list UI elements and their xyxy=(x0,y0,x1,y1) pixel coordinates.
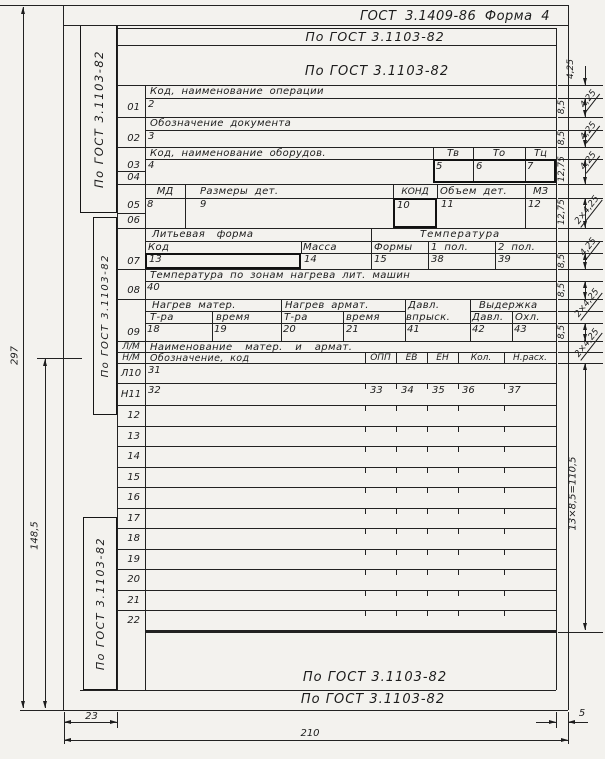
dim-half-height: 148,5 xyxy=(30,496,41,576)
column-tick xyxy=(365,508,366,514)
grid-line xyxy=(405,299,406,341)
cell-value-42: 42 xyxy=(472,324,485,335)
row-number-06: 06 xyxy=(117,213,144,228)
cell-value-9: 9 xyxy=(200,199,206,210)
col-header-1pol: 1 пол. xyxy=(431,242,468,253)
column-tick xyxy=(504,467,505,473)
cell-value-3: 3 xyxy=(148,131,154,142)
group-header-pressure: Давл. xyxy=(408,300,439,311)
dimension-arrow xyxy=(583,292,587,299)
col-header-obem: Объем дет. xyxy=(440,186,507,197)
column-tick xyxy=(365,610,366,616)
grid-line xyxy=(301,241,302,253)
dimension-arrow xyxy=(583,140,587,147)
grid-line xyxy=(371,228,372,269)
group-header-temperature: Температура xyxy=(420,229,500,240)
emphasis-box xyxy=(393,198,437,228)
dimension-arrow xyxy=(64,738,71,742)
grid-line xyxy=(145,311,405,312)
header-document: Обозначение документа xyxy=(150,118,291,129)
grid-line xyxy=(145,130,556,131)
dimension-arrow xyxy=(43,701,47,708)
row-number-21: 21 xyxy=(117,590,144,610)
group-header-mold: Литьевая форма xyxy=(152,229,253,240)
grid-line xyxy=(558,228,603,229)
col-header-vremya-1: время xyxy=(216,312,250,323)
col-header-vremya-2: время xyxy=(346,312,380,323)
grid-line xyxy=(117,528,556,529)
grid-line xyxy=(117,117,556,118)
column-tick xyxy=(396,549,397,555)
grid-line xyxy=(145,85,146,690)
cell-value-36: 36 xyxy=(462,385,475,396)
cell-value-39: 39 xyxy=(498,254,511,265)
cell-value-8: 8 xyxy=(147,199,153,210)
column-tick xyxy=(365,549,366,555)
dimension-arrow xyxy=(583,334,587,341)
grid-line xyxy=(558,352,603,353)
cell-value-14: 14 xyxy=(304,254,317,265)
column-tick xyxy=(427,467,428,473)
row-number-01: 01 xyxy=(117,98,144,117)
gost-strip-side-3-label: По ГОСТ 3.1103-82 xyxy=(94,537,107,670)
dimension-arrow xyxy=(583,363,587,370)
row-number-20: 20 xyxy=(117,569,144,590)
column-tick xyxy=(427,426,428,432)
grid-line xyxy=(558,632,603,633)
grid-line xyxy=(145,323,556,324)
col-header-tra-2: Т-ра xyxy=(284,312,308,323)
col-header-md: МД xyxy=(145,185,185,198)
grid-line xyxy=(63,25,568,26)
gost-strip-side-1-label: По ГОСТ 3.1103-82 xyxy=(92,50,106,188)
grid-line xyxy=(117,171,145,172)
dim-chain-7-d: 2×4,25 xyxy=(572,326,602,361)
grid-line xyxy=(504,352,505,363)
col-header-vprysk: впрыск. xyxy=(406,312,450,323)
dimension-arrow xyxy=(21,701,25,708)
grid-line xyxy=(117,549,556,550)
column-tick xyxy=(365,467,366,473)
grid-line xyxy=(117,28,556,29)
grid-line xyxy=(558,184,603,185)
grid-line xyxy=(185,184,186,228)
header-zone-temperature: Температура по зонам нагрева лит. машин xyxy=(150,270,410,281)
grid-line xyxy=(558,311,603,312)
dimension-arrow xyxy=(583,262,587,269)
column-tick xyxy=(458,610,459,616)
row-number-19: 19 xyxy=(117,549,144,569)
column-tick xyxy=(458,467,459,473)
dimension-arrow xyxy=(583,98,587,105)
column-tick xyxy=(458,405,459,411)
column-tick xyxy=(396,383,397,389)
col-header-tra-1: Т-ра xyxy=(150,312,174,323)
dimension-arrow xyxy=(583,110,587,117)
col-header-ohl: Охл. xyxy=(515,312,540,323)
column-tick xyxy=(504,528,505,534)
cell-value-38: 38 xyxy=(431,254,444,265)
column-tick xyxy=(365,590,366,596)
grid-line xyxy=(558,253,603,254)
grid-line xyxy=(343,311,344,341)
column-tick xyxy=(365,487,366,493)
column-tick xyxy=(396,508,397,514)
row-number-04: 04 xyxy=(117,171,144,183)
col-header-mz: МЗ xyxy=(525,185,556,198)
col-header-massa: Масса xyxy=(303,242,337,253)
dimension-arrow xyxy=(583,281,587,288)
column-tick xyxy=(458,446,459,452)
grid-line xyxy=(470,299,471,341)
dimension-arrow xyxy=(583,177,587,184)
grid-line xyxy=(117,569,556,570)
grid-line xyxy=(117,467,556,468)
grid-line xyxy=(117,426,556,427)
column-tick xyxy=(504,610,505,616)
column-tick xyxy=(504,487,505,493)
grid-line xyxy=(117,352,556,353)
dim-chain-3-v: 12,75 xyxy=(557,149,567,189)
column-tick xyxy=(396,569,397,575)
column-tick xyxy=(427,549,428,555)
group-header-vyderzhka: Выдержка xyxy=(479,300,538,311)
column-tick xyxy=(504,590,505,596)
column-tick xyxy=(396,590,397,596)
cell-value-33: 33 xyxy=(370,385,383,396)
grid-line xyxy=(45,359,46,708)
cell-value-20: 20 xyxy=(283,324,296,335)
col-header-razmery: Размеры дет. xyxy=(200,186,278,197)
cell-value-4: 4 xyxy=(148,160,154,171)
row-number-22: 22 xyxy=(117,610,144,630)
dim-chain-3-d: 4,25 xyxy=(578,149,600,173)
cell-value-19: 19 xyxy=(214,324,227,335)
grid-line xyxy=(558,159,603,160)
cell-value-37: 37 xyxy=(508,385,521,396)
gost-strip-side-2-label: По ГОСТ 3.1103-82 xyxy=(100,254,111,377)
grid-line xyxy=(558,147,603,148)
col-header-tv: Тв xyxy=(433,147,473,159)
dimension-arrow xyxy=(583,159,587,166)
column-tick xyxy=(458,508,459,514)
column-tick xyxy=(504,549,505,555)
col-header-kod: Код xyxy=(148,242,169,253)
page-title: ГОСТ 3.1409-86 Форма 4 xyxy=(340,9,550,24)
grid-line xyxy=(558,341,603,342)
dimension-arrow xyxy=(583,130,587,137)
column-tick xyxy=(396,446,397,452)
gost-strip-side-3: По ГОСТ 3.1103-82 xyxy=(83,517,117,690)
column-tick xyxy=(365,383,366,389)
grid-line xyxy=(512,311,513,341)
column-tick xyxy=(504,383,505,389)
grid-line xyxy=(0,5,568,6)
column-tick xyxy=(365,405,366,411)
row-number-14: 14 xyxy=(117,446,144,467)
col-header-tc: Тц xyxy=(525,147,556,159)
column-tick xyxy=(458,426,459,432)
grid-line xyxy=(117,712,118,728)
grid-line xyxy=(558,281,603,282)
grid-line xyxy=(558,323,603,324)
gost-strip-top-1: По ГОСТ 3.1103-82 xyxy=(250,29,500,44)
grid-line xyxy=(117,269,556,270)
grid-line xyxy=(117,383,556,384)
column-tick xyxy=(396,528,397,534)
col-header-formy: Формы xyxy=(374,242,413,253)
cell-value-32: 32 xyxy=(148,385,161,396)
cell-value-2: 2 xyxy=(148,99,154,110)
cell-value-31: 31 xyxy=(148,365,161,376)
cell-value-15: 15 xyxy=(374,254,387,265)
row-number-n11: Н11 xyxy=(117,383,145,405)
row-number-09: 09 xyxy=(117,323,144,341)
grid-line xyxy=(145,281,556,282)
grid-line xyxy=(433,147,434,159)
row-number-08: 08 xyxy=(117,281,144,299)
dim-chain-5-d: 4,25 xyxy=(578,235,600,259)
grid-line xyxy=(365,352,366,363)
row-number-17: 17 xyxy=(117,508,144,528)
header-operation: Код, наименование операции xyxy=(150,86,324,97)
grid-line xyxy=(117,508,556,509)
column-tick xyxy=(427,405,428,411)
grid-line xyxy=(396,352,397,363)
column-tick xyxy=(427,487,428,493)
grid-line xyxy=(281,299,282,341)
grid-line xyxy=(558,363,603,364)
dim-paper-width: 210 xyxy=(260,728,360,739)
row-number-05: 05 xyxy=(117,198,144,213)
column-tick xyxy=(396,405,397,411)
col-header-davl: Давл. xyxy=(472,312,503,323)
grid-line xyxy=(117,184,556,185)
dim-chain-7-v: 8,5 xyxy=(557,312,567,352)
grid-line xyxy=(558,117,603,118)
col-header-ev: ЕВ xyxy=(396,352,427,363)
group-header-heat-material: Нагрев матер. xyxy=(152,300,236,311)
dimension-arrow xyxy=(583,221,587,228)
col-header-2pol: 2 пол. xyxy=(498,242,535,253)
grid-line xyxy=(556,712,557,728)
grid-line xyxy=(145,630,556,633)
dimension-arrow xyxy=(583,198,587,205)
row-number-16: 16 xyxy=(117,487,144,508)
grid-line xyxy=(117,590,556,591)
grid-line xyxy=(212,311,213,341)
grid-line xyxy=(558,85,603,86)
grid-line xyxy=(525,184,526,228)
row-label-lm: Л/М xyxy=(117,341,145,352)
grid-line xyxy=(117,299,556,300)
grid-line xyxy=(428,241,429,269)
col-header-opp: ОПП xyxy=(365,352,396,363)
grid-line xyxy=(145,198,556,199)
column-tick xyxy=(504,426,505,432)
column-tick xyxy=(427,610,428,616)
column-tick xyxy=(365,528,366,534)
grid-line xyxy=(117,487,556,488)
col-header-kond: КОНД xyxy=(393,185,437,198)
row-number-15: 15 xyxy=(117,467,144,487)
column-tick xyxy=(504,508,505,514)
cell-value-18: 18 xyxy=(147,324,160,335)
cell-value-34: 34 xyxy=(401,385,414,396)
grid-line xyxy=(80,690,556,691)
column-tick xyxy=(427,508,428,514)
dim-right-margin: 5 xyxy=(574,708,590,719)
column-tick xyxy=(458,487,459,493)
cell-value-11: 11 xyxy=(441,199,454,210)
grid-line xyxy=(558,130,603,131)
dimension-arrow xyxy=(110,720,117,724)
gost-strip-bottom-1: По ГОСТ 3.1103-82 xyxy=(250,670,500,685)
gost-strip-side-2: По ГОСТ 3.1103-82 xyxy=(93,217,117,415)
column-tick xyxy=(427,528,428,534)
col-header-en: ЕН xyxy=(427,352,458,363)
column-tick xyxy=(458,590,459,596)
grid-line xyxy=(558,269,603,270)
dimension-arrow xyxy=(583,253,587,260)
col-header-nrash: Н.расх. xyxy=(504,352,556,363)
grid-line xyxy=(117,228,556,229)
row-number-l10: Л10 xyxy=(117,363,145,383)
column-tick xyxy=(396,487,397,493)
emphasis-box xyxy=(433,159,556,183)
grid-line xyxy=(117,341,556,342)
column-tick xyxy=(396,467,397,473)
column-tick xyxy=(365,426,366,432)
header-equipment: Код, наименование оборудов. xyxy=(150,148,326,159)
grid-line xyxy=(393,184,394,198)
grid-line xyxy=(558,98,603,99)
dim-chain-6-v: 8,5 xyxy=(557,270,567,310)
column-tick xyxy=(504,405,505,411)
grid-line xyxy=(556,28,557,690)
grid-line xyxy=(117,45,556,46)
column-tick xyxy=(365,569,366,575)
grid-line xyxy=(437,184,438,198)
column-tick xyxy=(427,446,428,452)
grid-line xyxy=(117,405,556,406)
dimension-arrow xyxy=(561,738,568,742)
dimension-arrow xyxy=(43,359,47,366)
grid-line xyxy=(558,299,603,300)
dim-paper-height: 297 xyxy=(10,316,21,396)
grid-line xyxy=(568,5,569,710)
column-tick xyxy=(427,569,428,575)
form-page: ГОСТ 3.1409-86 Форма 4 По ГОСТ 3.1103-82… xyxy=(0,0,605,759)
gost-strip-top-2: По ГОСТ 3.1103-82 xyxy=(252,64,502,79)
dim-row-block: 13×8,5=110,5 xyxy=(568,434,579,554)
emphasis-box xyxy=(145,253,301,269)
grid-line xyxy=(558,241,603,242)
grid-line xyxy=(568,712,569,744)
column-tick xyxy=(458,528,459,534)
col-header-kol: Кол. xyxy=(458,352,504,363)
grid-line xyxy=(64,740,568,741)
grid-line xyxy=(470,311,556,312)
grid-line xyxy=(585,363,586,630)
row-number-03: 03 xyxy=(117,159,144,171)
cell-value-43: 43 xyxy=(514,324,527,335)
row-number-18: 18 xyxy=(117,528,144,549)
dimension-arrow xyxy=(549,720,556,724)
dimension-arrow xyxy=(64,720,71,724)
cell-value-35: 35 xyxy=(432,385,445,396)
column-tick xyxy=(504,569,505,575)
grid-line xyxy=(117,25,118,690)
grid-line xyxy=(558,198,603,199)
gost-strip-bottom-2: По ГОСТ 3.1103-82 xyxy=(248,692,498,707)
grid-line xyxy=(117,363,556,364)
cell-value-21: 21 xyxy=(346,324,359,335)
dimension-arrow xyxy=(568,720,575,724)
grid-line xyxy=(145,98,556,99)
column-tick xyxy=(427,590,428,596)
grid-line xyxy=(63,5,64,710)
row-number-12: 12 xyxy=(117,405,144,426)
grid-line xyxy=(20,710,568,711)
column-tick xyxy=(427,383,428,389)
dimension-arrow xyxy=(583,623,587,630)
grid-line xyxy=(495,241,496,269)
dim-chain-6-d: 2×4,25 xyxy=(572,286,602,321)
cell-value-40: 40 xyxy=(147,282,160,293)
column-tick xyxy=(504,446,505,452)
column-tick xyxy=(458,569,459,575)
cell-value-41: 41 xyxy=(407,324,420,335)
column-tick xyxy=(365,446,366,452)
column-tick xyxy=(396,610,397,616)
column-tick xyxy=(396,426,397,432)
grid-line xyxy=(117,446,556,447)
grid-line xyxy=(117,147,556,148)
dimension-arrow xyxy=(21,7,25,14)
dimension-arrow xyxy=(583,323,587,330)
grid-line xyxy=(117,213,145,214)
dim-chain-2-d: 4,25 xyxy=(578,119,600,143)
gost-strip-side-1: По ГОСТ 3.1103-82 xyxy=(80,25,117,213)
row-number-02: 02 xyxy=(117,130,144,147)
grid-line xyxy=(23,7,24,708)
column-tick xyxy=(458,383,459,389)
dimension-arrow xyxy=(583,78,587,85)
group-header-heat-armature: Нагрев армат. xyxy=(285,300,369,311)
row-label-nm: Н/М xyxy=(117,352,145,363)
grid-line xyxy=(117,85,556,86)
col-header-to: То xyxy=(473,147,525,159)
column-tick xyxy=(458,549,459,555)
cell-value-12: 12 xyxy=(528,199,541,210)
row-number-07: 07 xyxy=(117,253,144,269)
dim-chain-1-d: 4,25 xyxy=(578,87,600,111)
grid-line xyxy=(117,610,556,611)
grid-line xyxy=(427,352,428,363)
grid-line xyxy=(458,352,459,363)
row-number-13: 13 xyxy=(117,426,144,446)
